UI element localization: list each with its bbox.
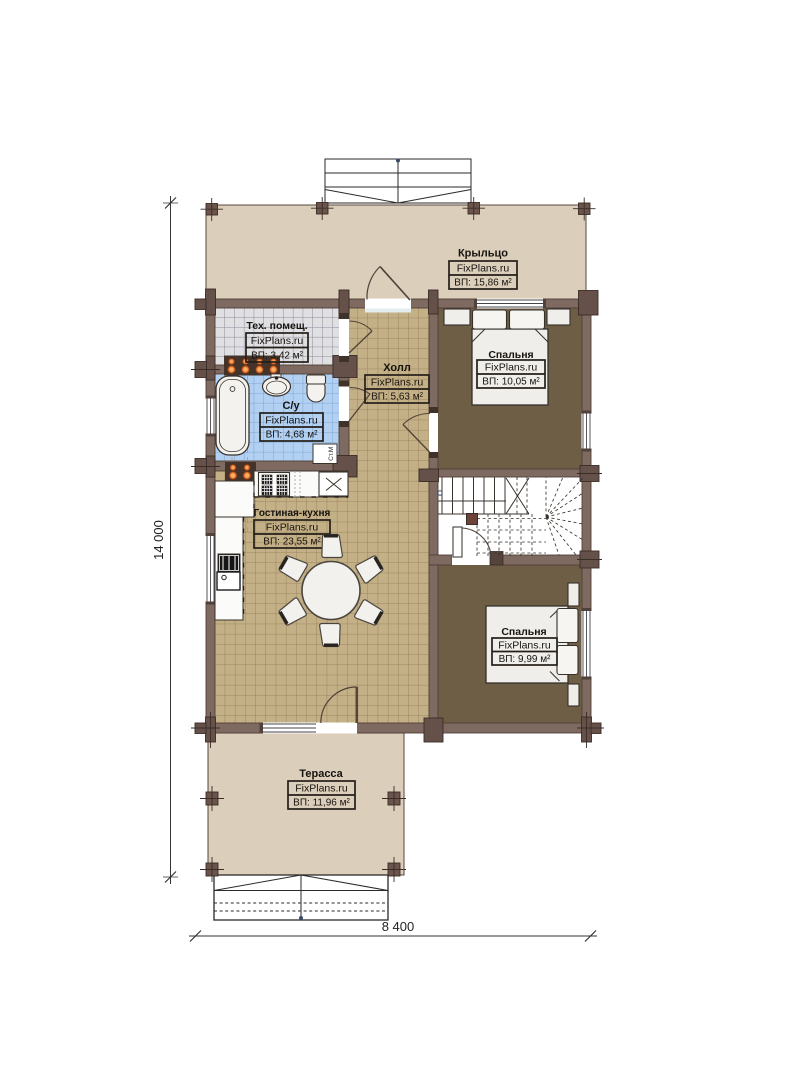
- svg-text:FixPlans.ru: FixPlans.ru: [498, 640, 551, 652]
- svg-text:FixPlans.ru: FixPlans.ru: [485, 362, 538, 374]
- svg-text:Терасса: Терасса: [299, 768, 343, 780]
- svg-text:ВП: 5,63 м²: ВП: 5,63 м²: [371, 392, 424, 403]
- svg-text:FixPlans.ru: FixPlans.ru: [457, 263, 510, 275]
- svg-text:14 000: 14 000: [151, 520, 166, 560]
- svg-text:FixPlans.ru: FixPlans.ru: [295, 783, 348, 795]
- svg-text:8 400: 8 400: [382, 919, 415, 934]
- svg-text:Гостиная-кухня: Гостиная-кухня: [254, 508, 331, 519]
- svg-text:Тех. помещ.: Тех. помещ.: [246, 320, 307, 332]
- svg-text:Ст.М: Ст.М: [328, 447, 335, 461]
- svg-text:Спальня: Спальня: [501, 626, 546, 638]
- svg-text:FixPlans.ru: FixPlans.ru: [265, 415, 318, 427]
- svg-text:Холл: Холл: [383, 362, 411, 374]
- svg-text:ВП: 11,96 м²: ВП: 11,96 м²: [293, 798, 350, 809]
- svg-text:ВП: 4,68 м²: ВП: 4,68 м²: [266, 430, 319, 441]
- svg-text:ВП: 23,55 м²: ВП: 23,55 м²: [263, 537, 321, 548]
- svg-text:ВП: 15,86 м²: ВП: 15,86 м²: [454, 278, 512, 289]
- svg-text:ВП: 10,05 м²: ВП: 10,05 м²: [482, 377, 540, 388]
- svg-text:ВП: 9,99 м²: ВП: 9,99 м²: [499, 654, 552, 665]
- svg-text:FixPlans.ru: FixPlans.ru: [266, 522, 319, 534]
- svg-text:FixPlans.ru: FixPlans.ru: [251, 335, 304, 347]
- svg-text:Крыльцо: Крыльцо: [458, 248, 508, 260]
- svg-text:ВП: 3,42 м²: ВП: 3,42 м²: [251, 351, 304, 362]
- svg-text:FixPlans.ru: FixPlans.ru: [371, 377, 424, 389]
- svg-text:С/у: С/у: [282, 400, 300, 412]
